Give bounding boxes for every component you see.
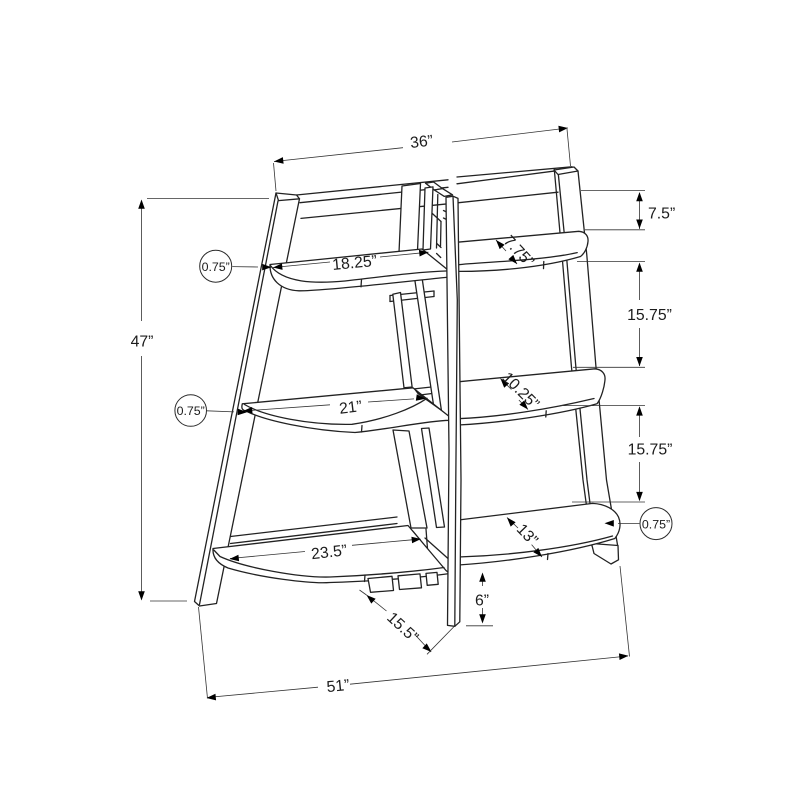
svg-text:7.5”: 7.5” xyxy=(648,205,675,222)
svg-text:51”: 51” xyxy=(326,677,350,696)
svg-text:0.75”: 0.75” xyxy=(642,517,670,531)
svg-text:0.75”: 0.75” xyxy=(202,260,230,274)
svg-text:36”: 36” xyxy=(409,133,434,152)
svg-text:21”: 21” xyxy=(338,398,363,418)
svg-text:0.75”: 0.75” xyxy=(177,404,205,418)
svg-text:15.75”: 15.75” xyxy=(627,307,672,324)
svg-text:15.75”: 15.75” xyxy=(628,442,673,459)
svg-text:47”: 47” xyxy=(131,333,154,350)
svg-text:6”: 6” xyxy=(475,592,489,609)
